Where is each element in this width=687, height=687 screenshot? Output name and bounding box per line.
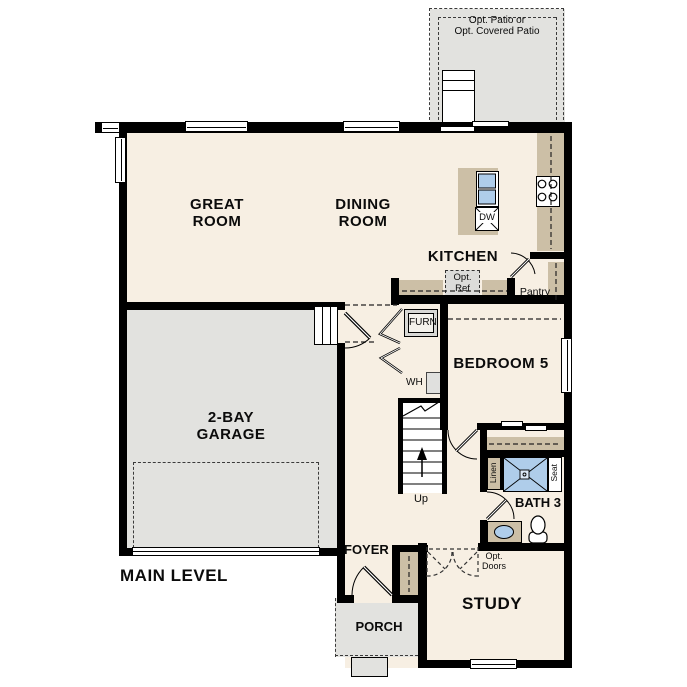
wall bbox=[480, 520, 487, 543]
garage-line2: GARAGE bbox=[171, 427, 291, 444]
porch-step bbox=[351, 657, 388, 677]
dining-room-line2: ROOM bbox=[303, 214, 423, 231]
garage-door-outline bbox=[133, 462, 319, 548]
bedroom5-closet-shelf bbox=[487, 437, 564, 450]
furnace-label: FURN bbox=[409, 317, 437, 328]
garage-entry-threshold bbox=[337, 310, 345, 345]
pantry-label: Pantry bbox=[505, 287, 565, 299]
sliding-door-panel bbox=[472, 121, 509, 127]
front-door-threshold bbox=[354, 595, 392, 603]
dining-room-line1: DINING bbox=[303, 197, 423, 214]
dining-room-label: DINING ROOM bbox=[303, 197, 423, 231]
window bbox=[561, 338, 572, 393]
stairs-floor bbox=[403, 398, 442, 493]
wall bbox=[337, 595, 354, 603]
chimney-line bbox=[443, 90, 474, 91]
kitchen-sink-cabinet bbox=[476, 171, 499, 207]
stairs-up-label: Up bbox=[407, 493, 435, 505]
window-glass-line bbox=[121, 139, 122, 181]
foyer-closet-shelf bbox=[400, 552, 418, 595]
window-glass-line bbox=[567, 340, 568, 391]
shower-pan bbox=[503, 457, 548, 492]
chimney-line bbox=[443, 80, 474, 81]
bedroom5-label: BEDROOM 5 bbox=[441, 356, 561, 373]
wall bbox=[530, 252, 564, 259]
floor-plan: Opt. Patio or Opt. Covered Patio bbox=[0, 0, 687, 687]
window bbox=[115, 137, 126, 183]
window bbox=[470, 659, 517, 669]
garage-label: 2-BAY GARAGE bbox=[171, 410, 291, 444]
kitchen-label: KITCHEN bbox=[403, 249, 523, 266]
garage-line1: 2-BAY bbox=[171, 410, 291, 427]
foyer-label: FOYER bbox=[344, 543, 389, 558]
window-glass-line bbox=[472, 664, 515, 665]
wall bbox=[398, 398, 447, 403]
wall bbox=[418, 543, 427, 668]
wall bbox=[480, 423, 487, 492]
bath3-label: BATH 3 bbox=[498, 496, 578, 511]
window bbox=[101, 122, 120, 133]
wall bbox=[442, 403, 447, 494]
window-glass-line bbox=[187, 127, 246, 128]
wall bbox=[398, 403, 403, 494]
wall bbox=[391, 278, 399, 305]
chimney bbox=[442, 70, 475, 123]
study-label: STUDY bbox=[432, 594, 552, 613]
garage-door-line bbox=[133, 551, 319, 552]
opt-ref-label: Opt. Ref bbox=[445, 273, 480, 294]
seat-label: Seat bbox=[550, 458, 560, 488]
furnace-box: FURN bbox=[404, 309, 438, 337]
wall bbox=[478, 543, 564, 551]
porch-dashed-edge bbox=[335, 598, 336, 657]
patio-label-line2: Opt. Covered Patio bbox=[434, 26, 560, 37]
wall bbox=[480, 450, 564, 457]
great-room-label: GREAT ROOM bbox=[157, 197, 277, 231]
wall bbox=[119, 302, 345, 310]
window bbox=[343, 121, 400, 132]
patio-label: Opt. Patio or Opt. Covered Patio bbox=[434, 15, 560, 37]
porch-label: PORCH bbox=[344, 620, 414, 635]
sliding-door-panel bbox=[440, 126, 475, 132]
window-glass-line bbox=[345, 127, 398, 128]
step-line bbox=[330, 307, 331, 344]
wall bbox=[564, 122, 572, 668]
closet-bypass-door bbox=[501, 421, 523, 427]
garage-door bbox=[132, 547, 320, 556]
cooktop-box bbox=[536, 176, 560, 207]
great-room-line1: GREAT bbox=[157, 197, 277, 214]
dishwasher-label: DW bbox=[475, 213, 499, 224]
garage-entry-step bbox=[314, 306, 338, 345]
main-level-label: MAIN LEVEL bbox=[120, 566, 228, 585]
step-line bbox=[322, 307, 323, 344]
opt-doors-label: Opt. Doors bbox=[477, 551, 511, 571]
patio-label-line1: Opt. Patio or bbox=[434, 15, 560, 26]
bath-vanity bbox=[487, 521, 522, 543]
linen-label: Linen bbox=[489, 458, 499, 488]
closet-bypass-door bbox=[525, 425, 547, 431]
great-room-line2: ROOM bbox=[157, 214, 277, 231]
window-glass-line bbox=[103, 128, 118, 129]
window bbox=[185, 121, 248, 132]
water-heater-label: WH bbox=[406, 377, 423, 388]
furnace-inner: FURN bbox=[408, 313, 434, 333]
wall bbox=[119, 122, 127, 556]
porch-dashed-edge bbox=[335, 655, 418, 656]
wall bbox=[337, 343, 345, 556]
